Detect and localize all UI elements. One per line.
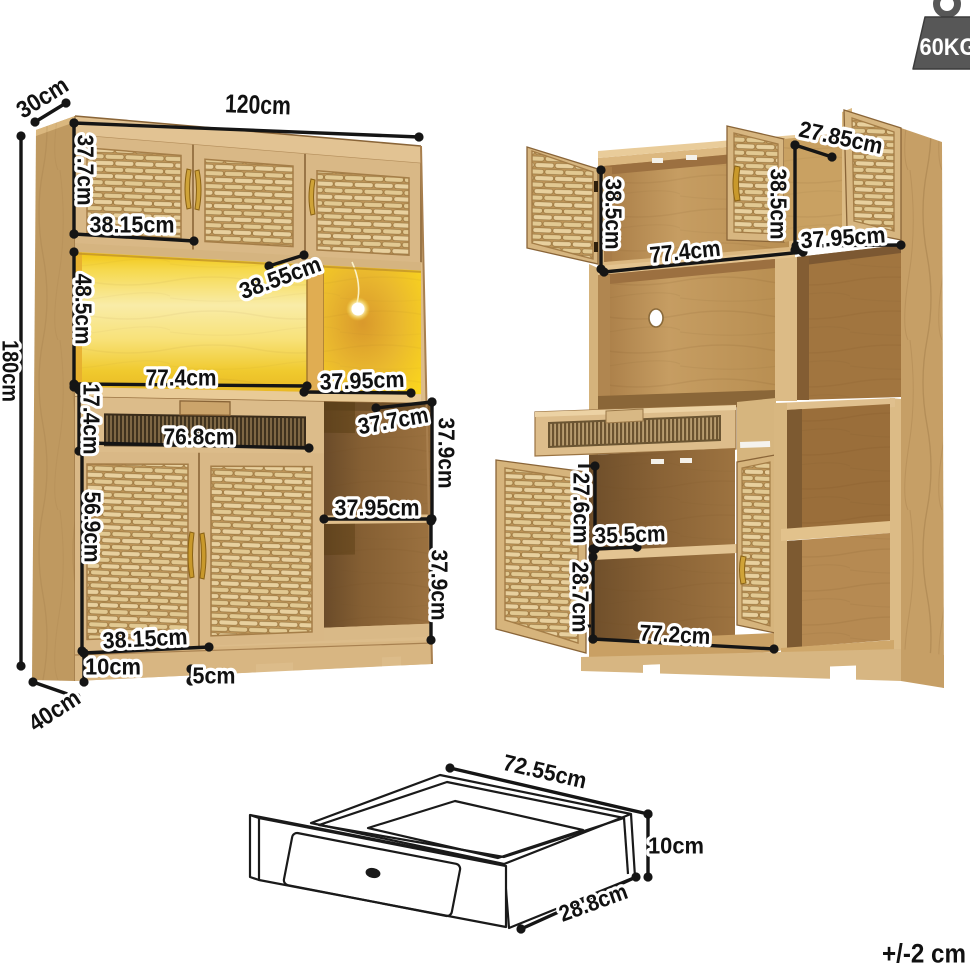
svg-text:48.5cm: 48.5cm	[71, 274, 97, 345]
svg-text:56.9cm: 56.9cm	[80, 492, 106, 563]
svg-text:5cm: 5cm	[193, 662, 236, 688]
svg-text:37.7cm: 37.7cm	[73, 135, 99, 206]
svg-text:37.9cm: 37.9cm	[427, 550, 453, 621]
svg-text:37.9cm: 37.9cm	[434, 418, 460, 489]
svg-text:27.6cm: 27.6cm	[569, 473, 595, 544]
svg-text:37.95cm: 37.95cm	[319, 366, 405, 395]
svg-text:120cm: 120cm	[224, 88, 291, 120]
svg-text:10cm: 10cm	[648, 832, 704, 858]
svg-text:10cm: 10cm	[85, 653, 141, 679]
svg-text:38.15cm: 38.15cm	[90, 211, 175, 237]
svg-text:28.7cm: 28.7cm	[568, 562, 594, 633]
svg-text:180cm: 180cm	[0, 340, 24, 402]
svg-text:+/-2 cm: +/-2 cm	[882, 939, 966, 969]
svg-text:38.15cm: 38.15cm	[102, 623, 188, 653]
svg-text:38.5cm: 38.5cm	[601, 179, 627, 250]
svg-text:37.95cm: 37.95cm	[335, 494, 420, 520]
svg-text:77.2cm: 77.2cm	[639, 619, 711, 649]
svg-text:76.8cm: 76.8cm	[164, 423, 235, 449]
svg-text:38.5cm: 38.5cm	[766, 169, 792, 240]
svg-text:35.5cm: 35.5cm	[594, 520, 666, 548]
svg-text:77.4cm: 77.4cm	[146, 364, 217, 390]
svg-text:60KG: 60KG	[920, 34, 970, 61]
svg-text:17.4cm: 17.4cm	[79, 384, 105, 455]
